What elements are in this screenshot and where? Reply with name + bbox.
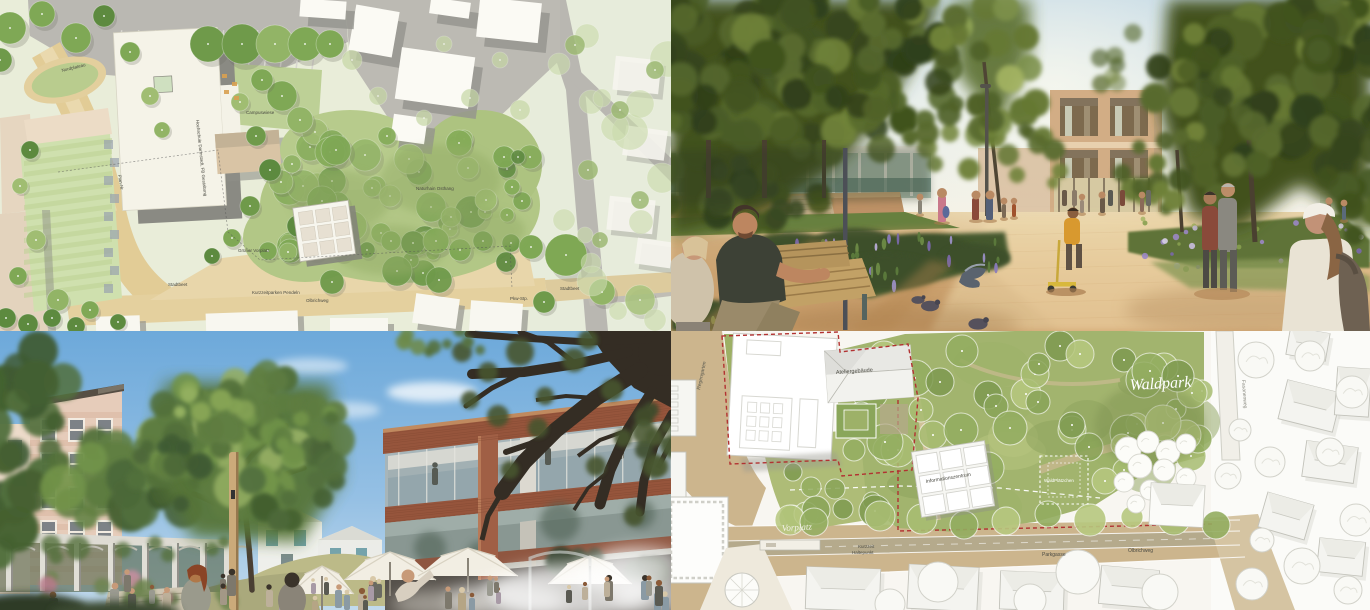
svg-text:Stadtbeet: Stadtbeet (168, 282, 188, 287)
svg-text:WaldPlätzchen: WaldPlätzchen (1044, 478, 1074, 483)
svg-text:Olbrichweg: Olbrichweg (306, 298, 329, 303)
svg-text:Kurzzeit: Kurzzeit (858, 544, 875, 549)
svg-text:Olbrichweg: Olbrichweg (1128, 548, 1153, 554)
svg-text:Waldpark: Waldpark (1129, 374, 1192, 394)
svg-text:Haltepunkt: Haltepunkt (852, 550, 874, 555)
svg-text:Kurzzeitparken Pendeln: Kurzzeitparken Pendeln (252, 290, 300, 295)
svg-text:Parkgasse: Parkgasse (1042, 552, 1066, 558)
svg-text:Naturhain Osthang: Naturhain Osthang (416, 186, 454, 191)
svg-text:Pkw-Stp.: Pkw-Stp. (510, 296, 528, 301)
svg-text:Vorplatz: Vorplatz (782, 521, 813, 533)
svg-text:Grüner Vorplatz: Grüner Vorplatz (238, 248, 270, 253)
svg-text:Stadtbeet: Stadtbeet (560, 286, 580, 291)
svg-text:Campuswiese: Campuswiese (246, 110, 275, 115)
